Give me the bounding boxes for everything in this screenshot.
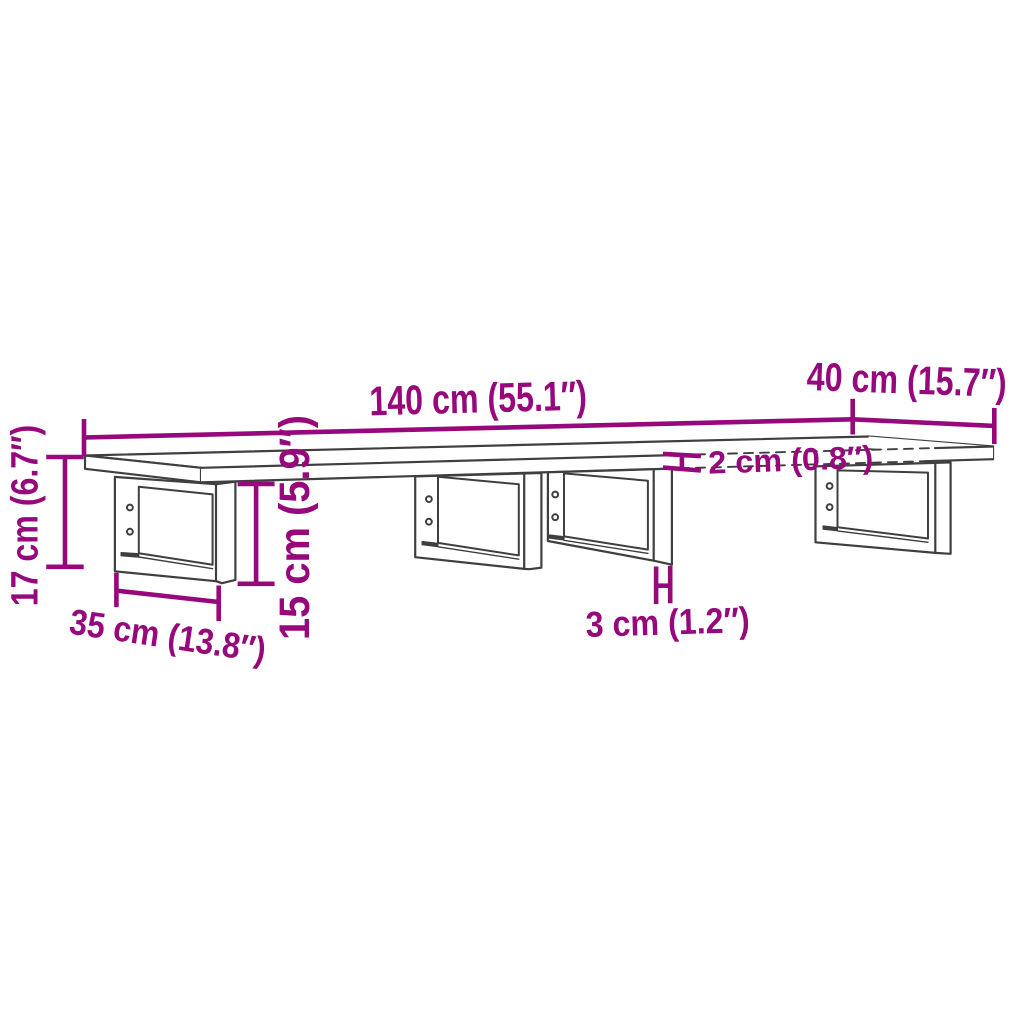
svg-text:2 cm (0.8″): 2 cm (0.8″) (708, 439, 874, 481)
svg-text:3 cm (1.2″): 3 cm (1.2″) (585, 599, 750, 645)
svg-text:140 cm (55.1″): 140 cm (55.1″) (369, 372, 588, 425)
svg-text:15 cm (5.9″): 15 cm (5.9″) (271, 415, 319, 640)
svg-text:17 cm (6.7″): 17 cm (6.7″) (5, 425, 47, 607)
svg-text:40 cm (15.7″): 40 cm (15.7″) (806, 355, 1007, 406)
